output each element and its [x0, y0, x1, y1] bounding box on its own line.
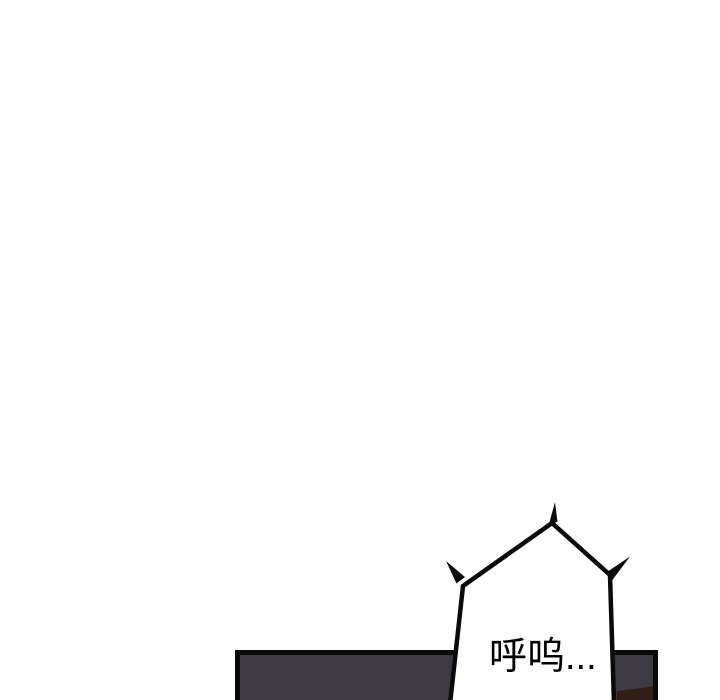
bubble-spike-top [549, 502, 558, 524]
bubble-spike-right [606, 557, 631, 581]
speech-bubble-text: 呼呜... [489, 636, 597, 678]
bubble-spike-left [446, 561, 465, 584]
comic-art: 呼呜... [0, 0, 720, 700]
comic-page: 呼呜... [0, 0, 720, 700]
speech-bubble: 呼呜... [446, 502, 630, 700]
